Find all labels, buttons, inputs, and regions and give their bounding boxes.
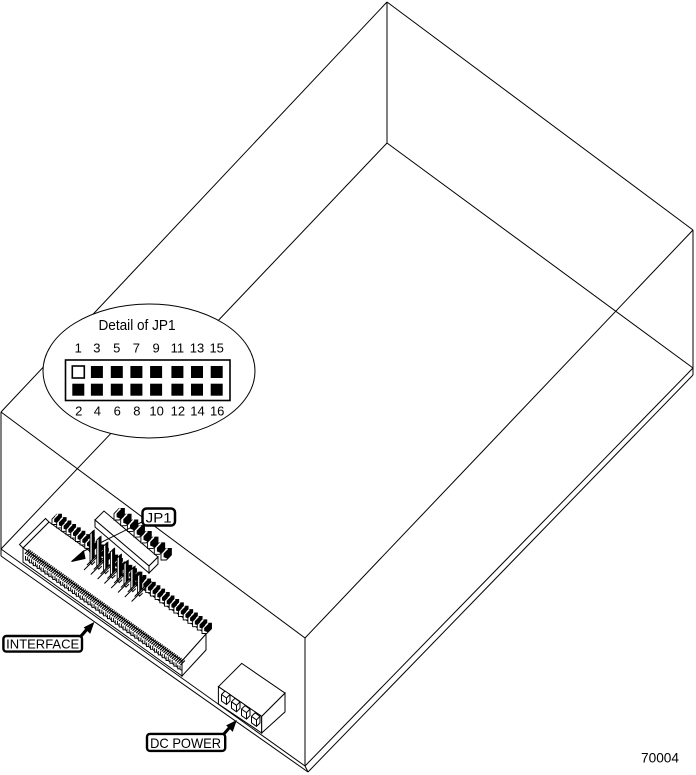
svg-text:14: 14 — [190, 403, 204, 418]
svg-text:8: 8 — [133, 403, 140, 418]
svg-text:4: 4 — [94, 403, 101, 418]
svg-text:70004: 70004 — [641, 750, 679, 765]
svg-text:JP1: JP1 — [146, 510, 172, 526]
svg-text:12: 12 — [171, 403, 185, 418]
svg-text:2: 2 — [75, 403, 82, 418]
svg-text:10: 10 — [149, 403, 163, 418]
svg-text:7: 7 — [133, 341, 140, 356]
svg-text:11: 11 — [171, 341, 185, 356]
svg-text:INTERFACE: INTERFACE — [6, 637, 79, 652]
svg-text:1: 1 — [75, 341, 82, 356]
svg-text:15: 15 — [209, 341, 223, 356]
svg-text:6: 6 — [114, 403, 121, 418]
svg-text:9: 9 — [152, 341, 159, 356]
svg-text:5: 5 — [113, 341, 120, 356]
svg-text:3: 3 — [93, 341, 100, 356]
svg-text:13: 13 — [190, 341, 204, 356]
svg-text:Detail of JP1: Detail of JP1 — [99, 317, 176, 334]
svg-text:DC POWER: DC POWER — [150, 735, 221, 751]
svg-text:16: 16 — [210, 403, 224, 418]
